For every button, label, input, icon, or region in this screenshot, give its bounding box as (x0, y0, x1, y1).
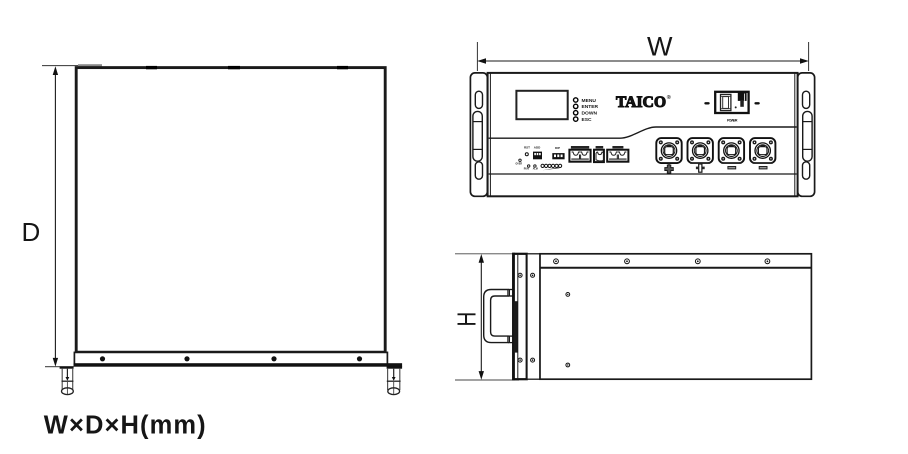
svg-text:POWER: POWER (727, 118, 738, 122)
svg-text:RST: RST (524, 145, 530, 149)
svg-text:OVER: OVER (516, 164, 523, 166)
svg-text:D: D (22, 217, 41, 247)
svg-text:ENTER: ENTER (582, 104, 599, 110)
svg-text:RUN: RUN (524, 168, 529, 170)
svg-text:®: ® (667, 94, 671, 101)
svg-text:W×D×H(mm): W×D×H(mm) (44, 412, 207, 440)
svg-text:ADD: ADD (534, 145, 541, 149)
svg-text:H: H (451, 312, 481, 327)
svg-text:DOWN: DOWN (582, 111, 598, 117)
svg-text:W: W (647, 32, 673, 62)
svg-text:TAICO: TAICO (616, 94, 666, 111)
svg-text:ALM: ALM (533, 167, 538, 170)
svg-text:ESC: ESC (582, 117, 593, 123)
svg-text:MENU: MENU (582, 98, 597, 104)
svg-text:DIP: DIP (555, 146, 560, 150)
